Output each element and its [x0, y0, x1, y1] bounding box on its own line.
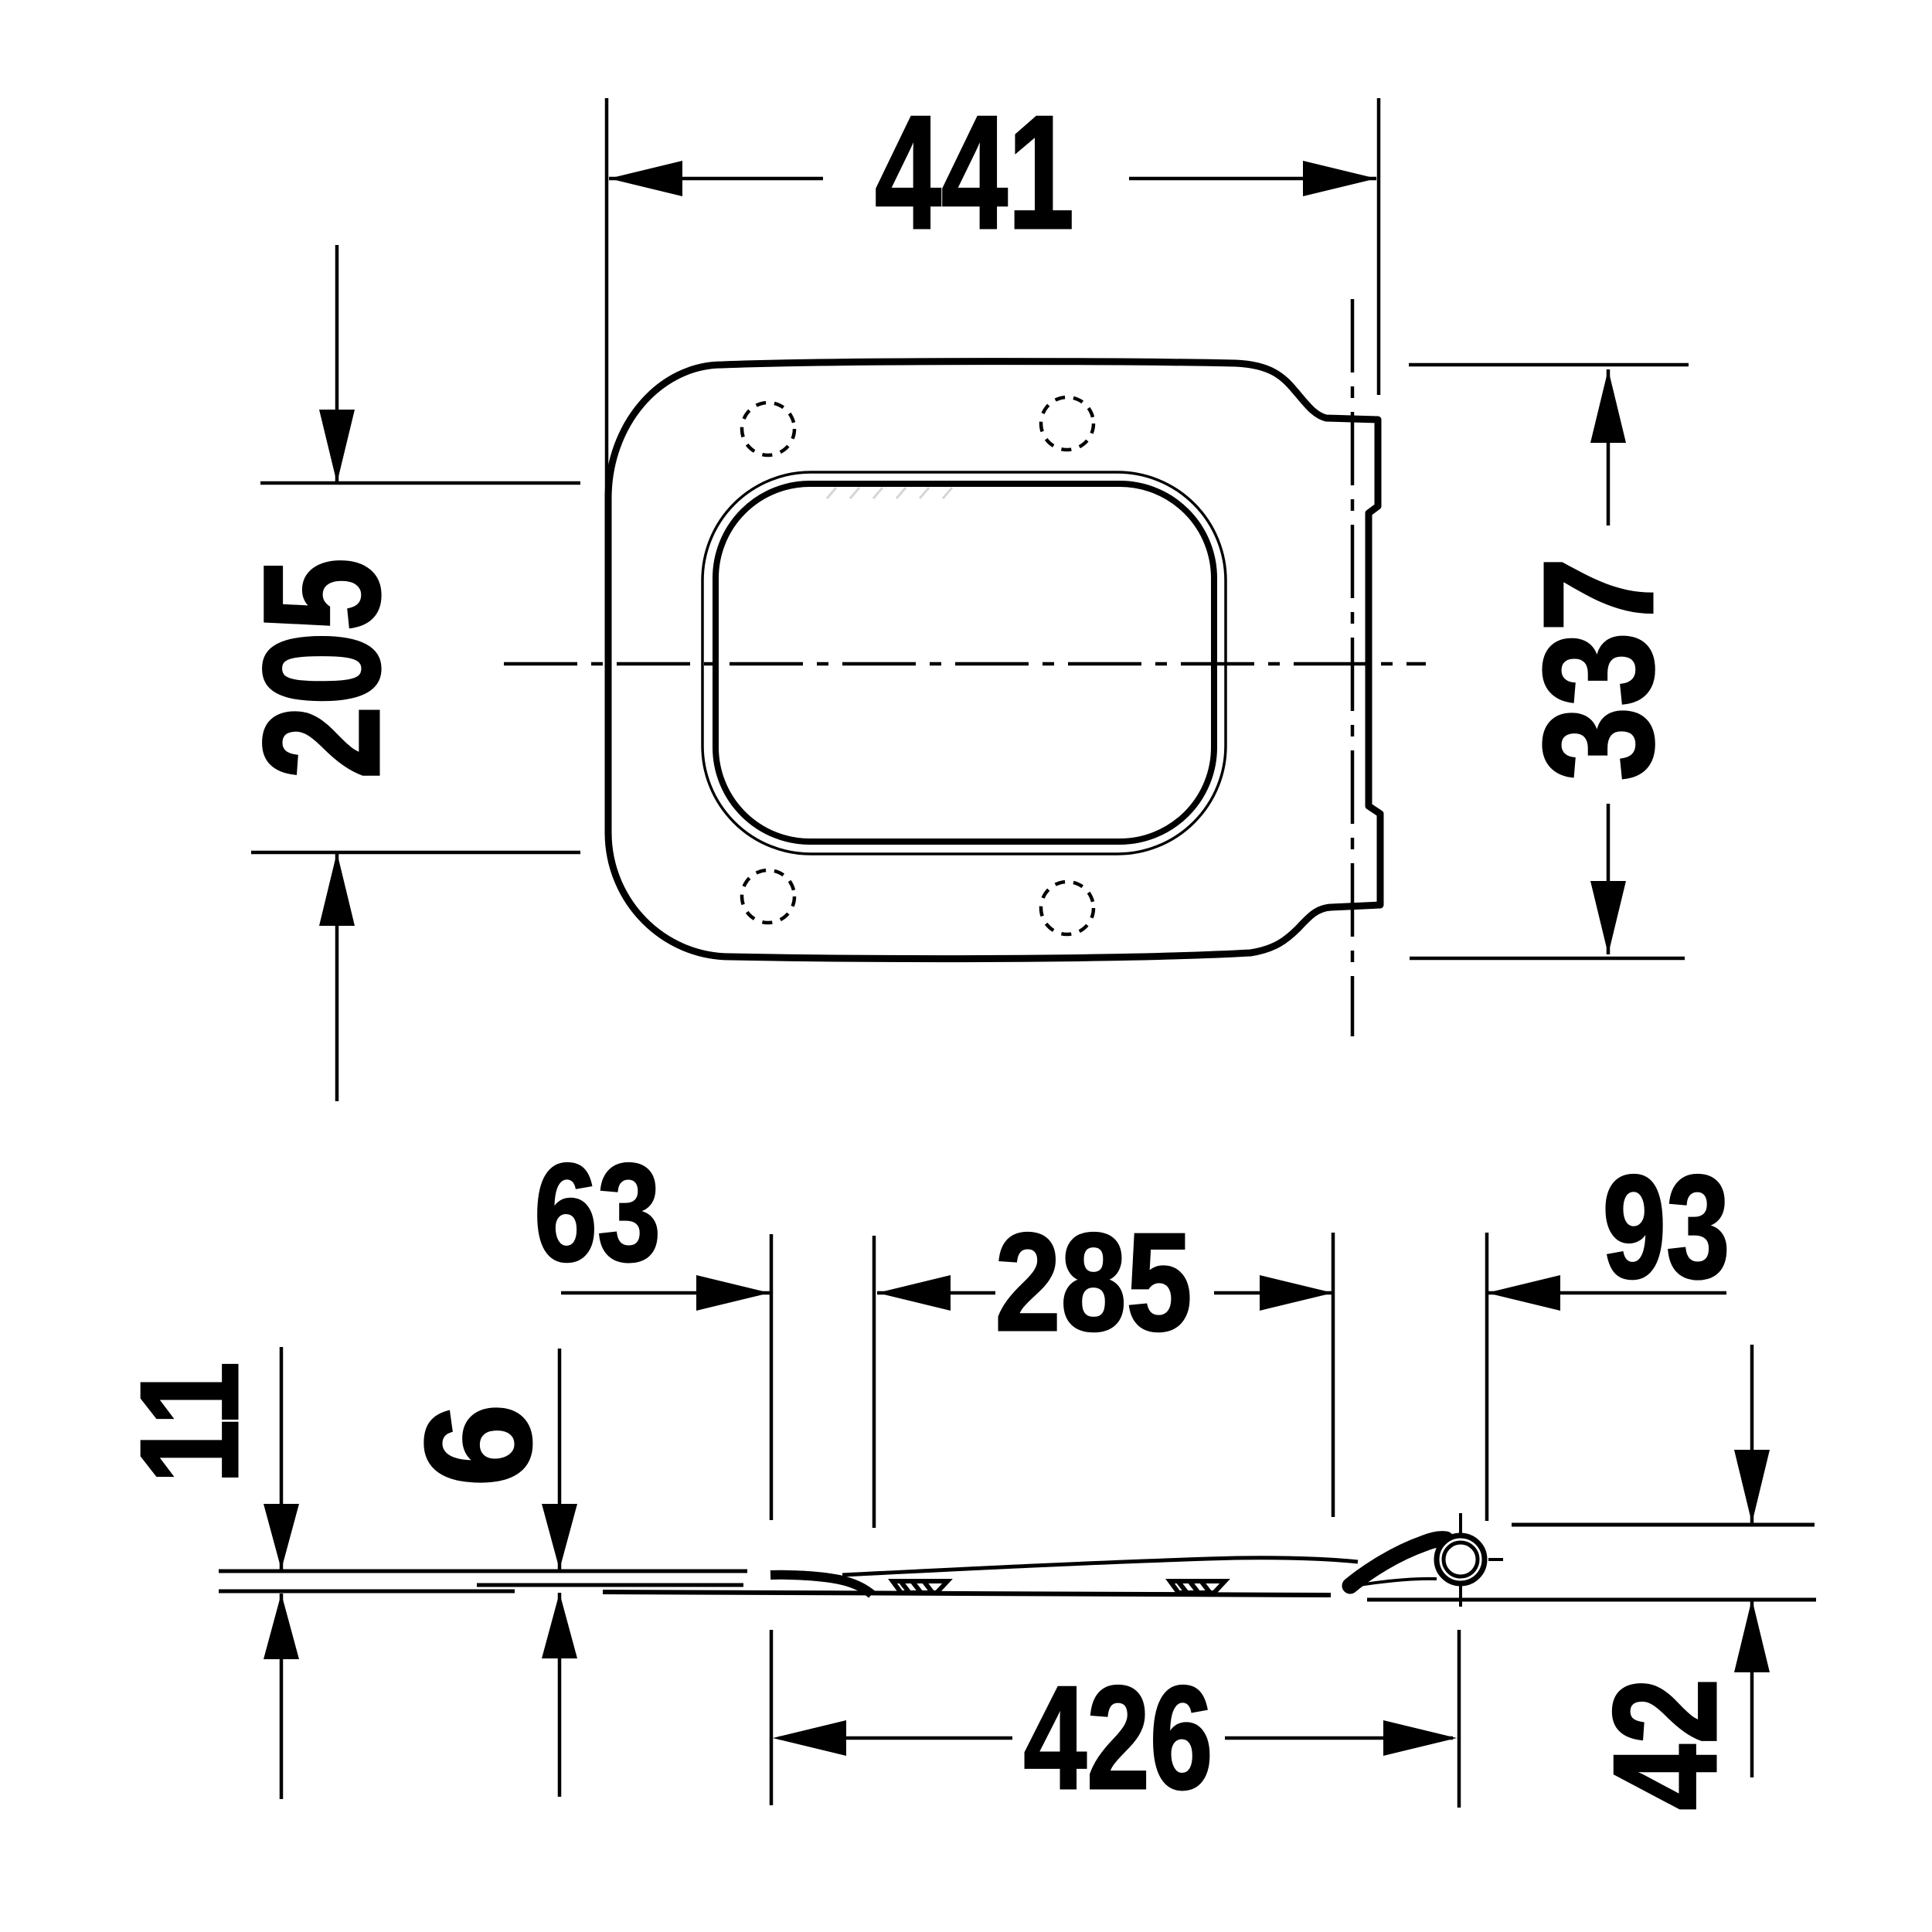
- svg-text:426: 426: [1024, 1656, 1213, 1820]
- svg-text:441: 441: [875, 83, 1074, 263]
- svg-text:63: 63: [534, 1135, 661, 1291]
- svg-text:6: 6: [394, 1403, 563, 1487]
- svg-text:42: 42: [1583, 1679, 1747, 1811]
- svg-text:93: 93: [1603, 1145, 1730, 1309]
- svg-text:285: 285: [995, 1205, 1192, 1360]
- svg-text:205: 205: [230, 558, 414, 780]
- svg-text:11: 11: [112, 1362, 267, 1484]
- svg-text:337: 337: [1511, 557, 1685, 781]
